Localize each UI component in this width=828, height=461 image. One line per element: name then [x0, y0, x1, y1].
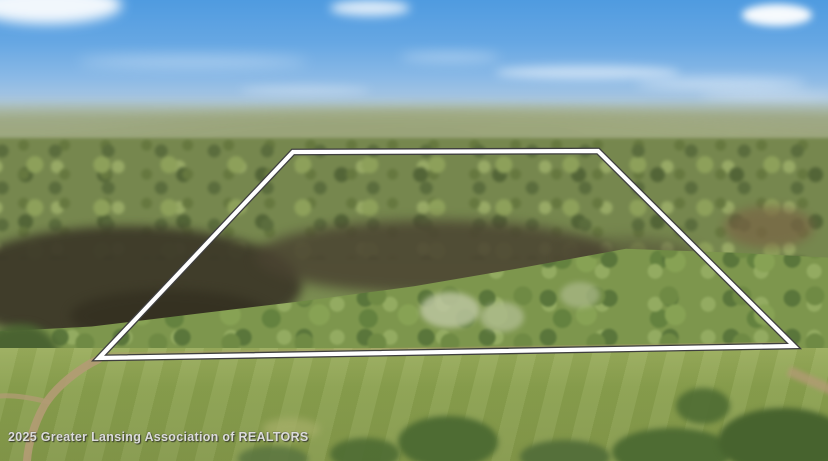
property-boundary-outline [99, 151, 794, 358]
property-boundary-line [99, 151, 794, 358]
watermark-text: 2025 Greater Lansing Association of REAL… [8, 430, 309, 444]
aerial-property-photo: 2025 Greater Lansing Association of REAL… [0, 0, 828, 461]
property-boundary-overlay [0, 0, 828, 461]
